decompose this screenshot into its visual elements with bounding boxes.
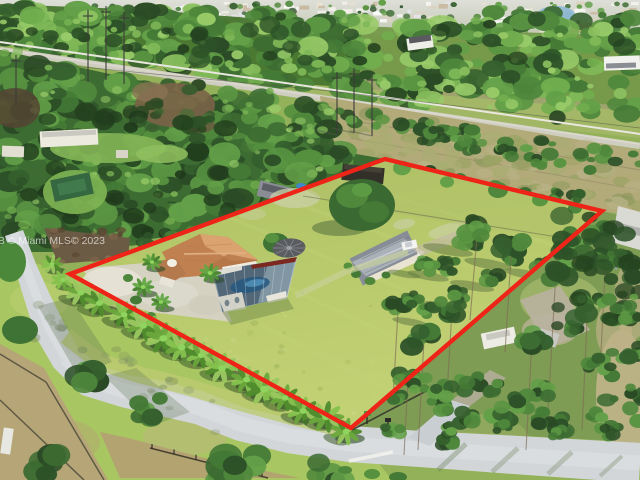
svg-text:0B © Miami MLS© 2023: 0B © Miami MLS© 2023: [0, 235, 105, 247]
